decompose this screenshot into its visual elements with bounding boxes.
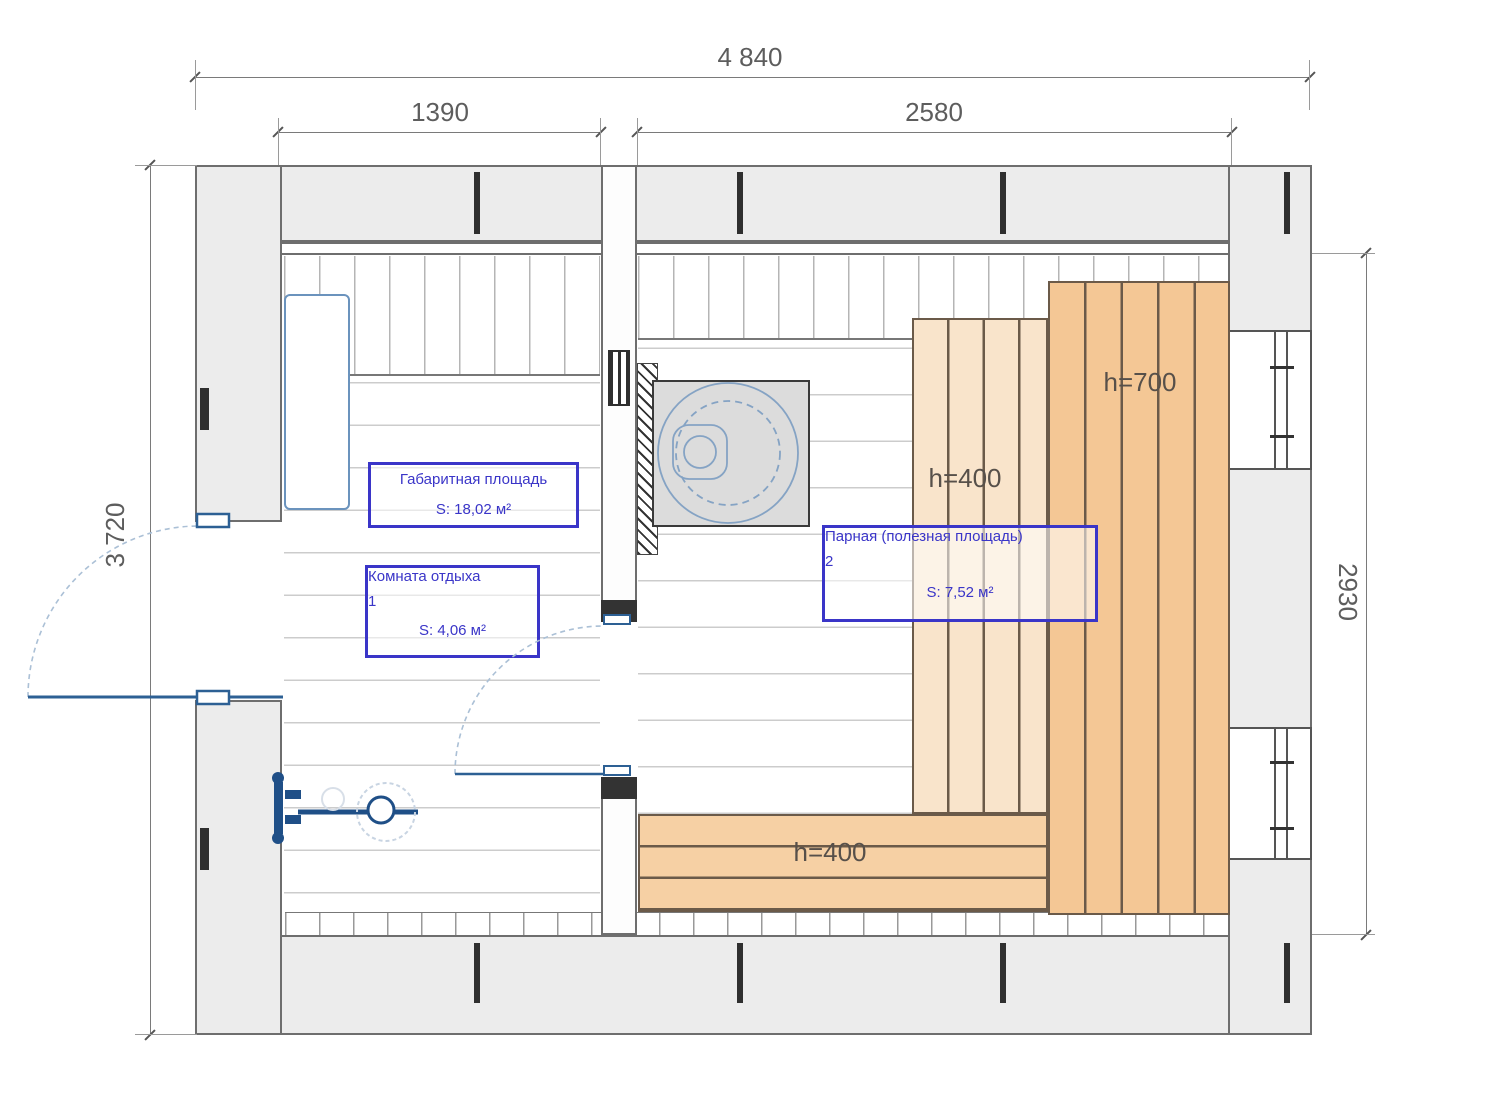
steam-room-annotation: Парная (полезная площадь) 2 S: 7,52 м² xyxy=(822,525,1098,622)
ext-line xyxy=(135,165,197,166)
rest-room-annotation: Комната отдыха 1 S: 4,06 м² xyxy=(365,565,540,658)
window-upper-latch-top xyxy=(1270,366,1294,369)
window-upper-mullion xyxy=(1274,332,1288,468)
rest-room-number: 1 xyxy=(368,593,537,612)
window-lower xyxy=(1228,727,1312,860)
left-wall-lower xyxy=(195,700,282,1035)
partition-door-jamb-top xyxy=(601,600,637,622)
chimney-vent xyxy=(608,350,630,406)
dim-line-rest-room-width xyxy=(278,132,601,133)
top-wall xyxy=(195,165,1310,242)
top-wall-liner xyxy=(195,242,1310,255)
ext-line xyxy=(195,60,196,110)
left-wall-upper xyxy=(195,165,282,522)
dim-text-steam-room-width: 2580 xyxy=(864,97,1004,127)
overall-area-annotation: Габаритная площадь S: 18,02 м² xyxy=(368,462,579,528)
dim-line-overall-depth xyxy=(150,165,151,1035)
ext-line xyxy=(637,118,638,165)
partition-door-jamb-bottom xyxy=(601,777,637,799)
rest-room-name: Комната отдыха xyxy=(368,568,537,587)
steam-room-number: 2 xyxy=(825,553,1095,572)
window-lower-mullion xyxy=(1274,729,1288,858)
cabinet xyxy=(284,294,350,510)
dim-line-inner-depth xyxy=(1366,253,1367,935)
steam-room-area-value: S: 7,52 м² xyxy=(825,584,1095,603)
dim-line-overall-width xyxy=(195,77,1310,78)
partition-wall-lower xyxy=(601,777,637,935)
window-lower-latch-bottom xyxy=(1270,827,1294,830)
steam-room-name: Парная (полезная площадь) xyxy=(825,528,1095,547)
rest-room-area-value: S: 4,06 м² xyxy=(368,622,537,641)
right-wall xyxy=(1228,165,1312,1035)
ext-line xyxy=(1312,253,1375,254)
ext-line xyxy=(1231,118,1232,165)
bench-bottom-height-label: h=400 xyxy=(765,836,895,868)
window-lower-latch-top xyxy=(1270,761,1294,764)
ext-line xyxy=(600,118,601,165)
bottom-cladding-strip xyxy=(285,912,1310,935)
overall-area-title: Габаритная площадь xyxy=(371,471,576,490)
dim-text-overall-depth: 3 720 xyxy=(100,455,130,615)
floor-plan-canvas: h=700 h=400 h=400 Габаритная площадь S: … xyxy=(0,0,1500,1117)
bench-middle-height-label: h=400 xyxy=(900,462,1030,494)
window-upper-latch-bottom xyxy=(1270,435,1294,438)
dim-line-steam-room-width xyxy=(637,132,1232,133)
overall-area-value: S: 18,02 м² xyxy=(371,501,576,520)
sauna-stove xyxy=(652,380,810,527)
dim-text-overall-width: 4 840 xyxy=(660,42,840,72)
dim-text-inner-depth: 2930 xyxy=(1333,512,1363,672)
bottom-wall xyxy=(195,935,1310,1035)
bench-tall-height-label: h=700 xyxy=(1075,366,1205,398)
dim-text-rest-room-width: 1390 xyxy=(370,97,510,127)
interior-door-jamb-bottom xyxy=(604,766,630,775)
window-upper xyxy=(1228,330,1312,470)
ext-line xyxy=(135,1034,197,1035)
ext-line xyxy=(1309,60,1310,110)
ext-line xyxy=(278,118,279,165)
ext-line xyxy=(1312,934,1375,935)
